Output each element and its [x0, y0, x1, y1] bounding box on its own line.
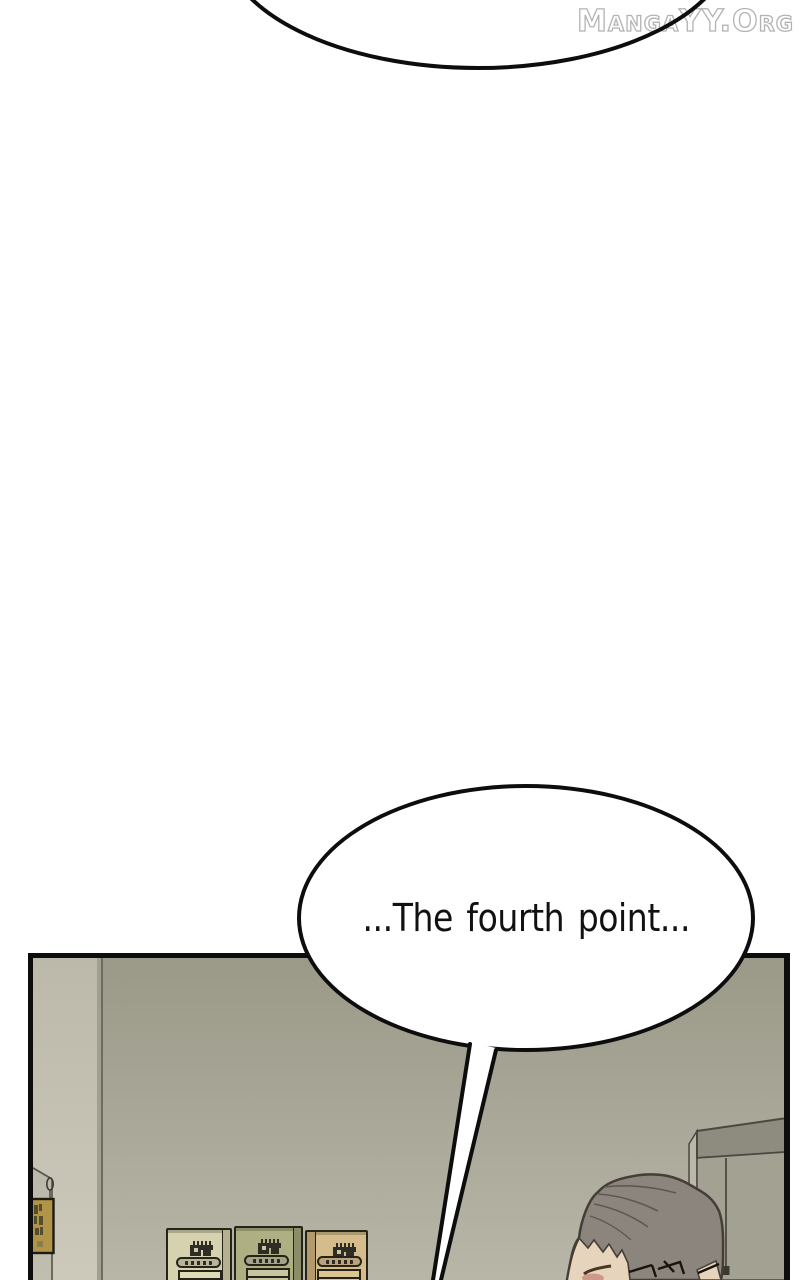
- machine-label-bar: [317, 1256, 362, 1267]
- comic-page: MangaYY.Org: [0, 0, 800, 1280]
- machine-tray: [178, 1270, 222, 1280]
- machine-label-bar: [244, 1255, 289, 1266]
- machine-side-face: [307, 1232, 316, 1280]
- machine-tray: [317, 1269, 361, 1280]
- machine-pixel-logo: [256, 1239, 284, 1255]
- face: [567, 1238, 630, 1280]
- machine-tray: [246, 1268, 290, 1280]
- machine-top-cap: [168, 1230, 230, 1233]
- watermark-logo: MangaYY.Org: [577, 4, 794, 39]
- vending-machine-3: [305, 1230, 368, 1280]
- door: [33, 958, 97, 1280]
- eyebrow: [584, 1266, 611, 1274]
- ear: [697, 1261, 721, 1280]
- panel-border-left: [28, 953, 33, 1280]
- storage-cabinet: [689, 1118, 787, 1280]
- glasses: [629, 1261, 684, 1277]
- speech-bubble: ...The fourth point...: [297, 784, 755, 1052]
- character-head: [567, 1174, 723, 1280]
- panel-border-right: [784, 953, 790, 1280]
- machine-side-face: [293, 1228, 301, 1280]
- vending-machine-1: [166, 1228, 232, 1280]
- vending-machine-2: [234, 1226, 303, 1280]
- wall-corner-line: [101, 958, 104, 1280]
- machine-top-cap: [236, 1228, 301, 1231]
- machine-side-face: [222, 1230, 230, 1280]
- machine-pixel-logo: [188, 1241, 216, 1257]
- machine-label-bar: [176, 1257, 221, 1268]
- speech-bubble-text: ...The fourth point...: [362, 896, 690, 940]
- hair: [567, 1174, 723, 1280]
